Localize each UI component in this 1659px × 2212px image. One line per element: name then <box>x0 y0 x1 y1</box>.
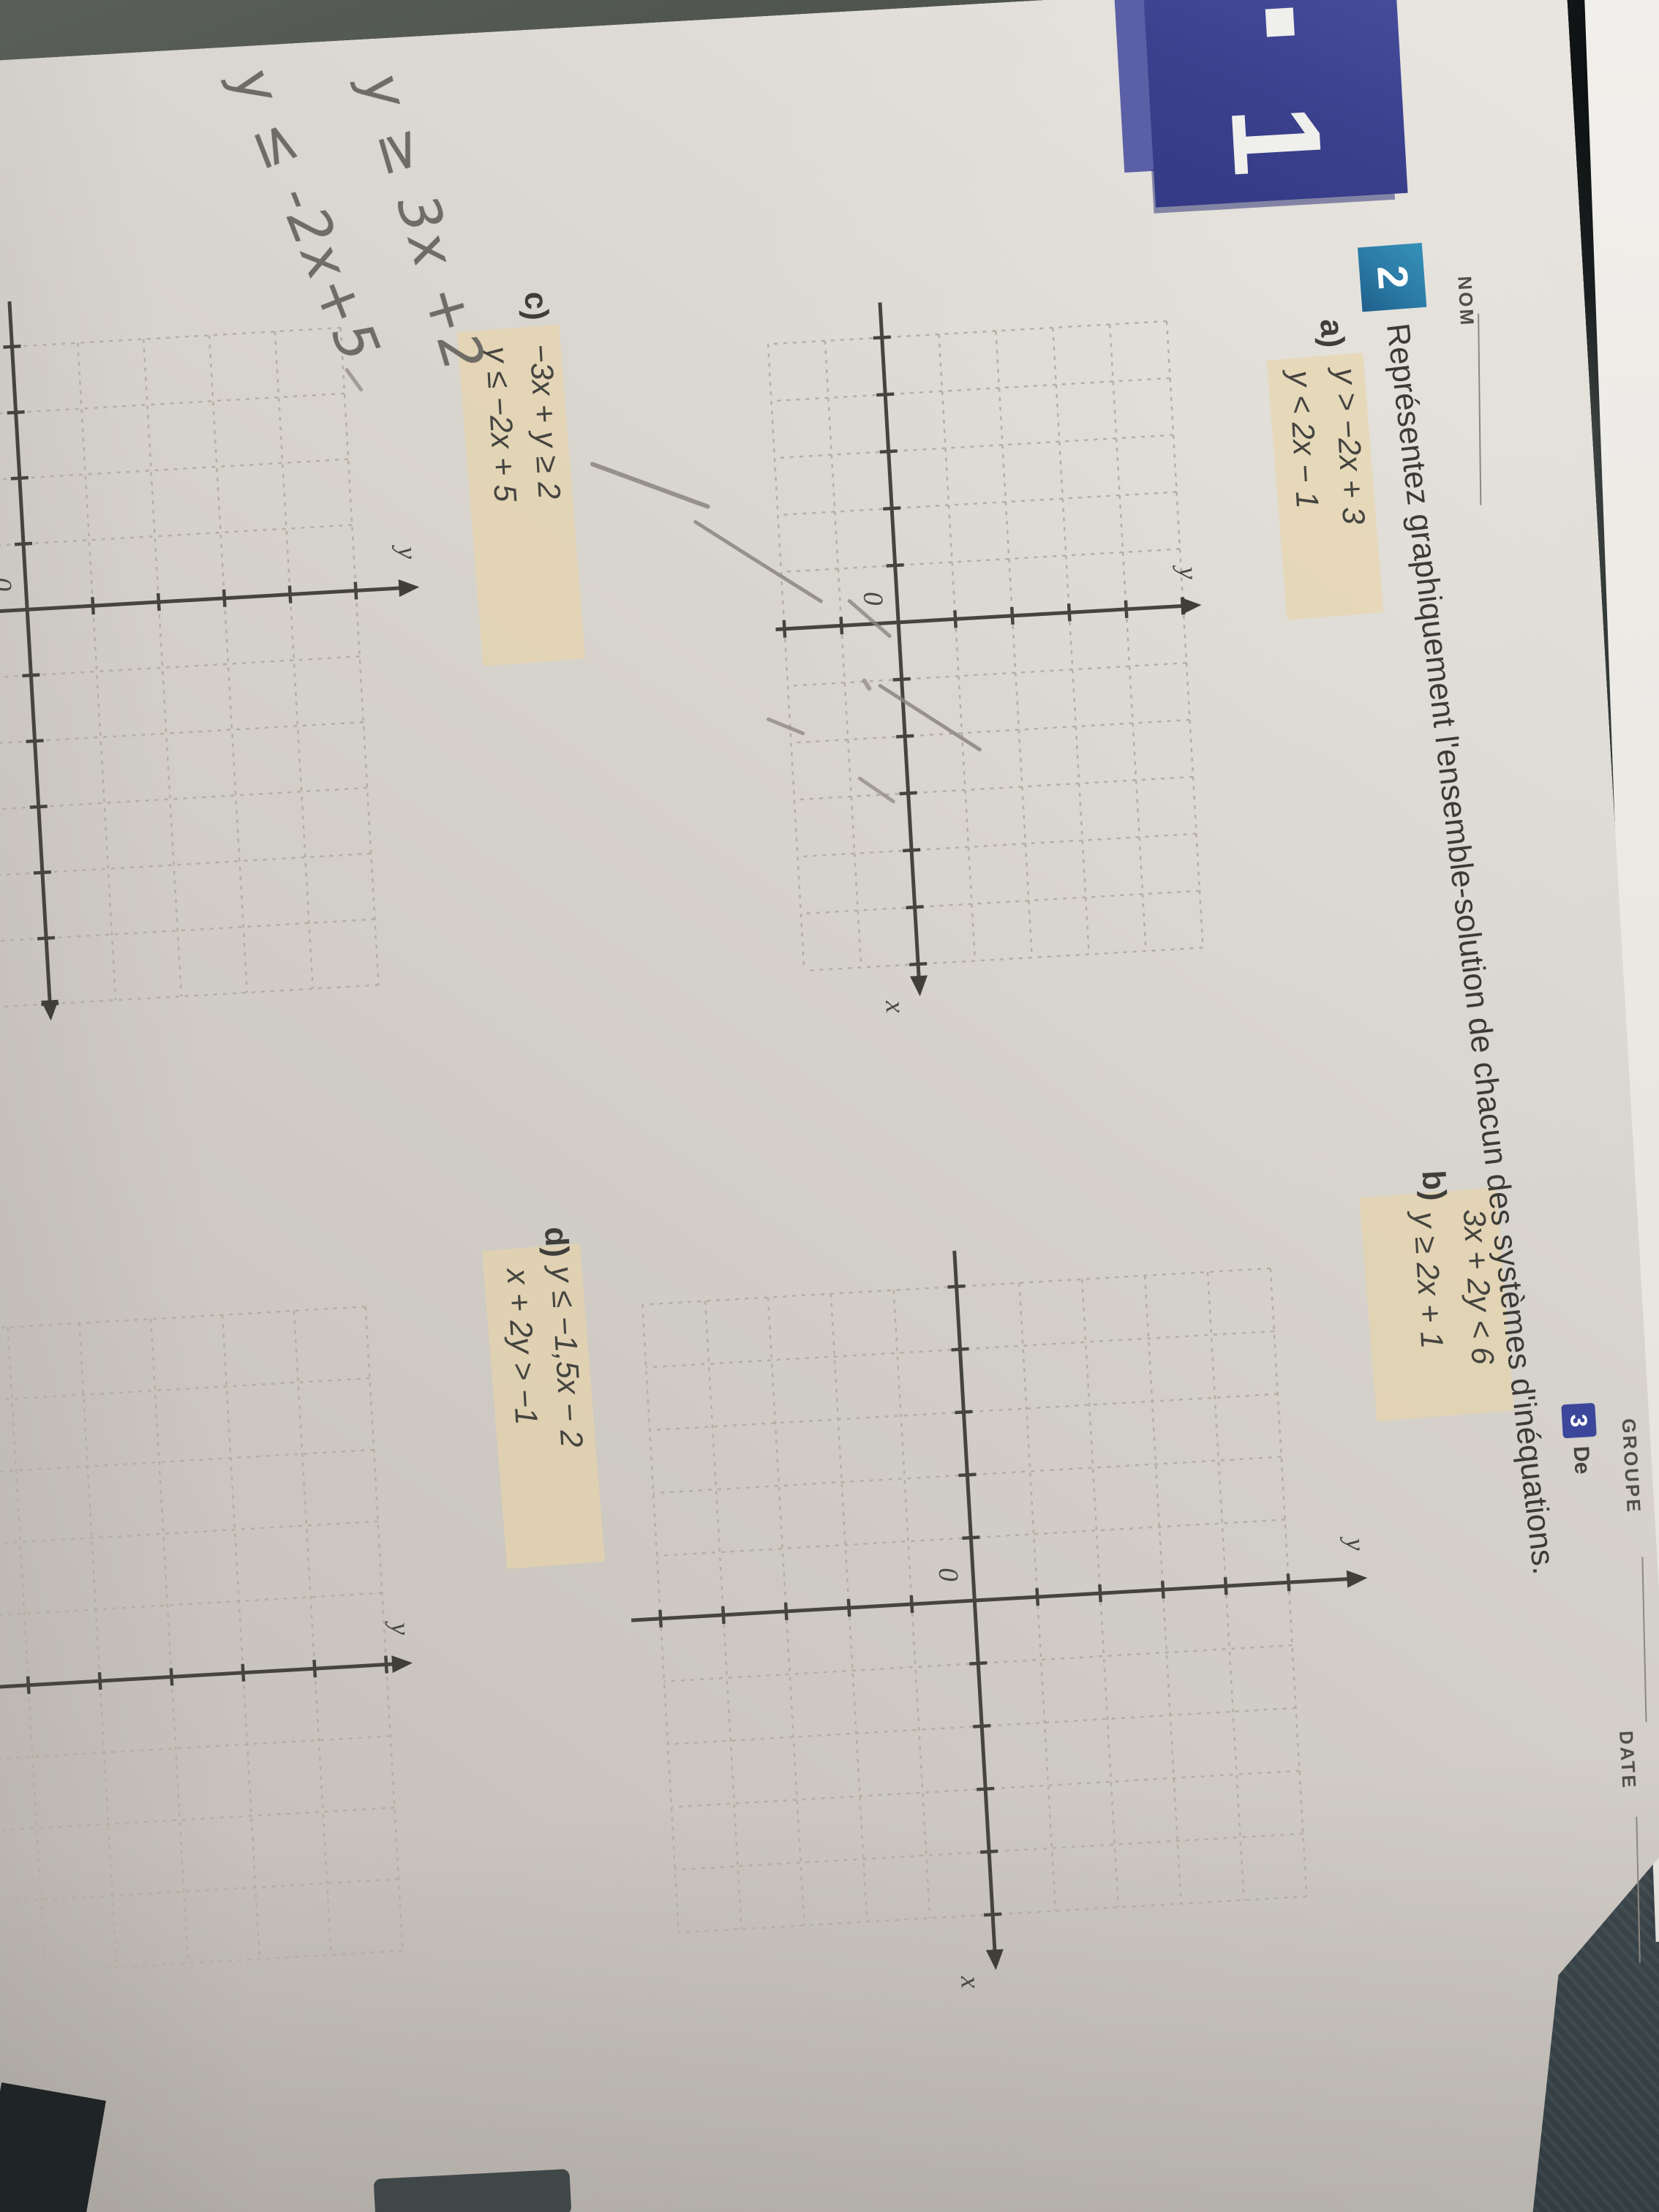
pencil-line-segment-1 <box>592 458 708 513</box>
photo-of-workbook-page: NOM GROUPE DATE 1 2 Représentez graphiqu… <box>0 0 1659 2212</box>
pencil-dash-2 <box>859 777 893 803</box>
pencil-dash-1 <box>768 718 802 736</box>
pencil-line-segment-3 <box>849 599 889 639</box>
pencil-dot <box>865 680 870 688</box>
pencil-line-segment-2 <box>696 515 821 608</box>
pencil-marks <box>0 0 1657 2212</box>
pencil-line-segment-4 <box>880 680 979 755</box>
chapter-tab-dot-icon <box>1265 7 1295 37</box>
pencil-stray-mark <box>347 369 361 391</box>
chapter-tab-number: 1 <box>1203 71 1350 211</box>
